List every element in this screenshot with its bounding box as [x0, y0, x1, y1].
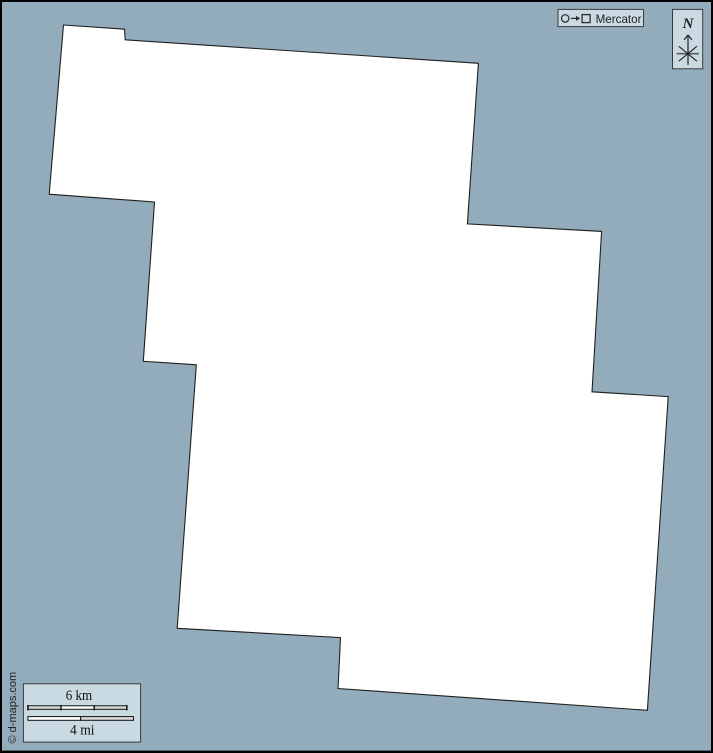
svg-text:© d-maps.com: © d-maps.com: [7, 672, 19, 744]
svg-text:4 mi: 4 mi: [70, 722, 95, 738]
svg-text:Mercator: Mercator: [596, 12, 642, 26]
svg-text:N: N: [682, 16, 695, 32]
svg-text:6 km: 6 km: [66, 688, 93, 704]
